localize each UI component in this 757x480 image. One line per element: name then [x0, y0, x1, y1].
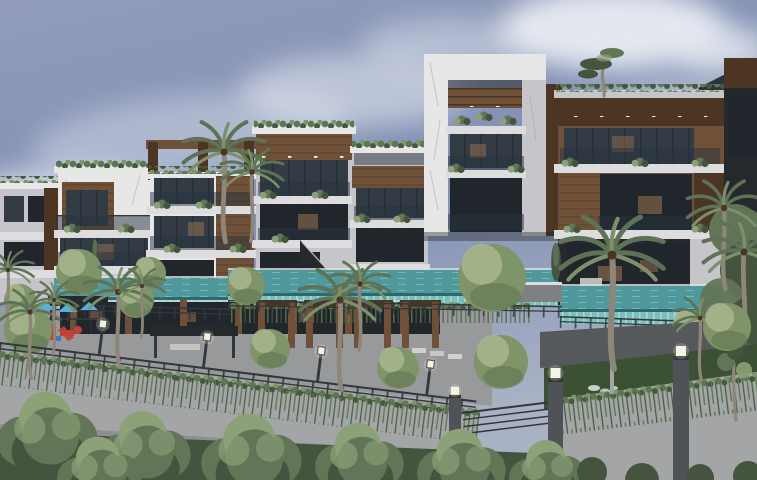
trimmed-bush: [703, 303, 751, 351]
villa-marble-portal: [424, 54, 562, 241]
cypress-tree: [551, 243, 561, 281]
gate-pillar: [673, 343, 689, 480]
architectural-render-image: [0, 0, 757, 480]
scene-svg: [0, 0, 757, 480]
